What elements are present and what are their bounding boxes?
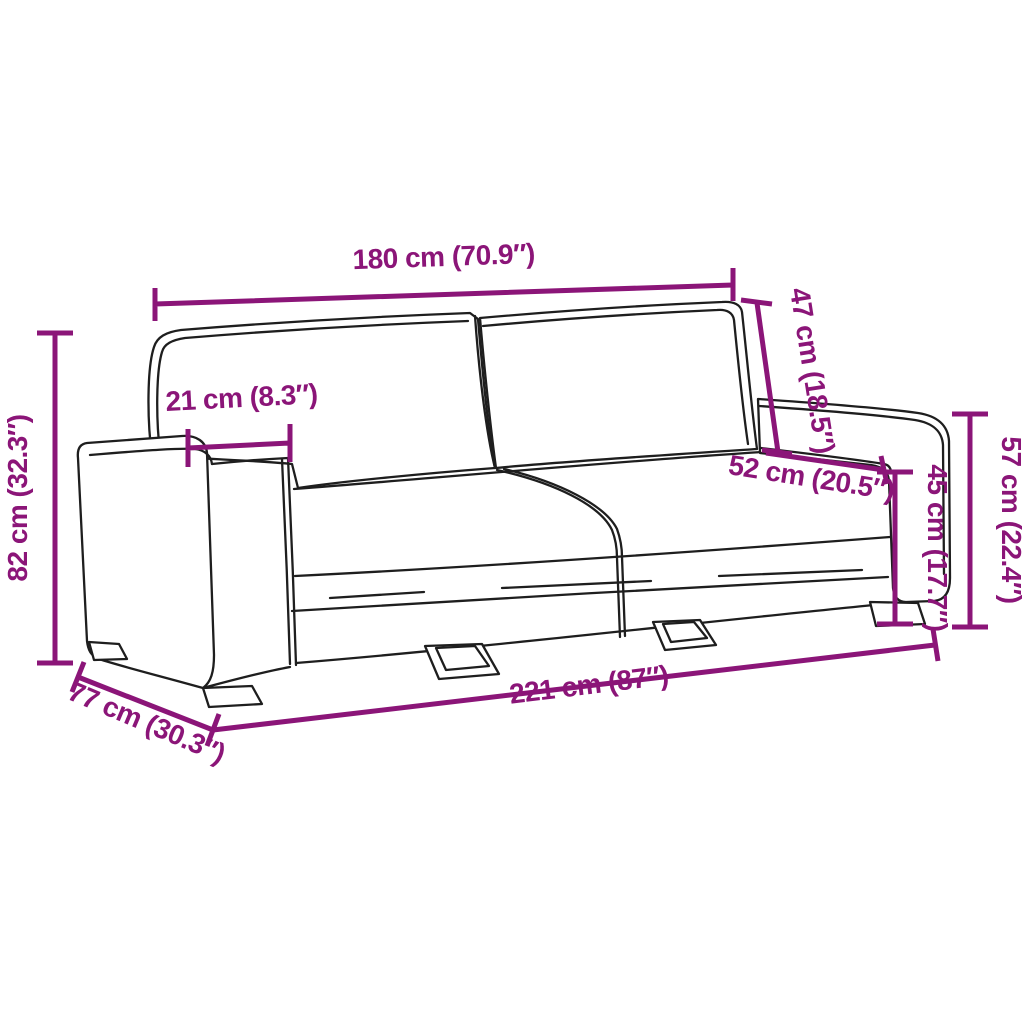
seat-cushion-seam-2 bbox=[504, 469, 625, 636]
dim-total-height: 82 cm (32.3″) bbox=[2, 333, 73, 663]
dim-total-width-label: 221 cm (87″) bbox=[508, 659, 671, 709]
seat-cushion-seam bbox=[497, 470, 620, 637]
dim-armrest-height: 57 cm (22.4″) bbox=[952, 414, 1024, 627]
under-rail-segment-2 bbox=[502, 581, 651, 588]
left-armrest-inner-bottom bbox=[203, 667, 290, 688]
right-armrest bbox=[758, 399, 950, 602]
under-rail-segment-1 bbox=[330, 592, 424, 598]
seat-front-edge bbox=[295, 537, 890, 576]
dim-armrest-width: 21 cm (8.3″) bbox=[165, 378, 319, 467]
base-bottom-edge bbox=[296, 604, 884, 663]
under-rail-segment-3 bbox=[719, 570, 862, 576]
dim-total-height-label: 82 cm (32.3″) bbox=[2, 414, 33, 581]
dimension-diagram: 180 cm (70.9″) 47 cm (18.5″) 21 cm (8.3″… bbox=[0, 0, 1024, 1024]
left-front-leg bbox=[203, 686, 262, 707]
sled-leg-right bbox=[653, 620, 716, 650]
dim-back-width: 180 cm (70.9″) bbox=[155, 238, 733, 321]
sled-leg-left bbox=[425, 644, 499, 679]
dim-seat-height-label: 45 cm (17.7″) bbox=[922, 464, 953, 631]
right-back-cushion bbox=[480, 302, 757, 468]
dim-total-width: 221 cm (87″) bbox=[213, 629, 938, 730]
dim-armrest-height-label: 57 cm (22.4″) bbox=[996, 436, 1024, 603]
right-back-cushion-piping bbox=[483, 310, 748, 444]
dim-back-width-label: 180 cm (70.9″) bbox=[352, 238, 535, 275]
sofa-dimension-svg: 180 cm (70.9″) 47 cm (18.5″) 21 cm (8.3″… bbox=[0, 0, 1024, 1024]
seat-back-edge bbox=[294, 452, 762, 489]
dim-armrest-width-label: 21 cm (8.3″) bbox=[165, 378, 319, 417]
